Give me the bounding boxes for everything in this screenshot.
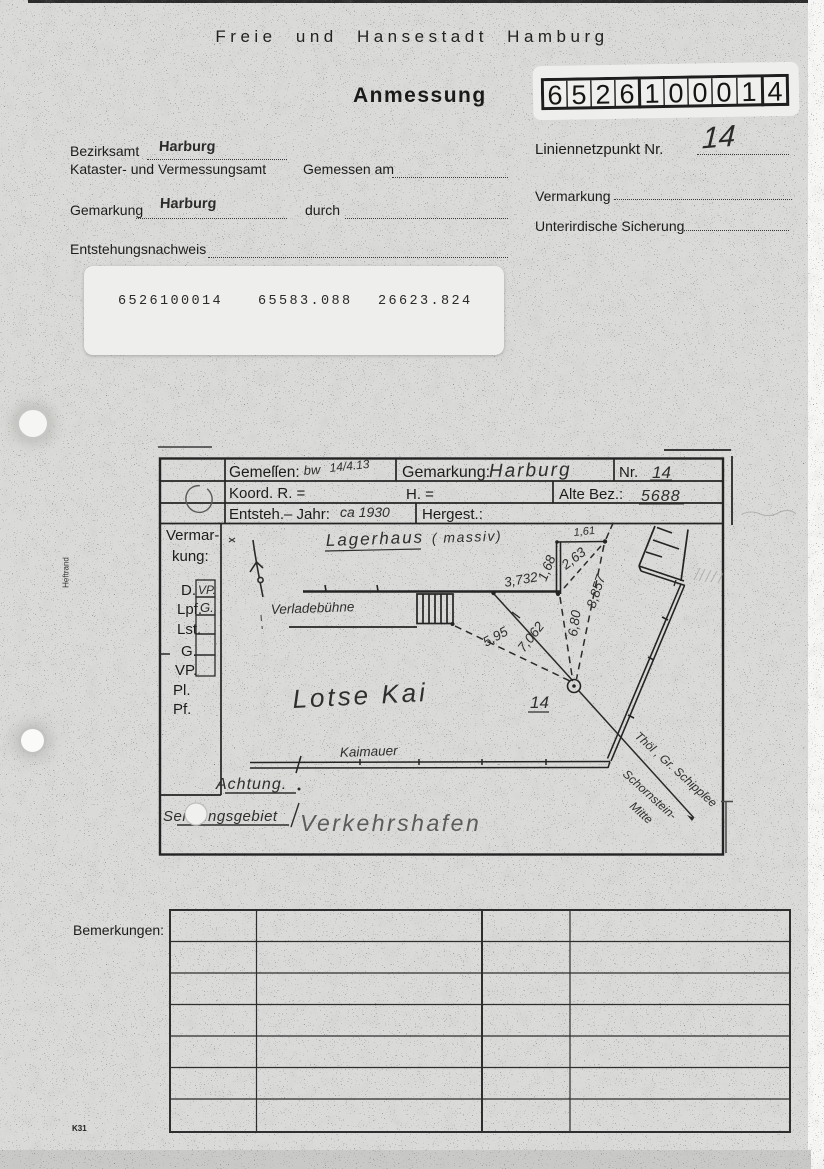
svg-text:G.: G. bbox=[181, 643, 197, 660]
svg-text:1,68: 1,68 bbox=[535, 553, 559, 583]
svg-text:Nr.: Nr. bbox=[619, 464, 638, 481]
svg-text:2,63: 2,63 bbox=[558, 544, 589, 573]
svg-text:14/4.13: 14/4.13 bbox=[329, 457, 371, 475]
svg-text:Lst.: Lst. bbox=[177, 621, 201, 638]
svg-text:G.: G. bbox=[200, 600, 214, 615]
svg-text:Kaimauer: Kaimauer bbox=[340, 743, 399, 760]
svg-text:( massiv): ( massiv) bbox=[432, 528, 503, 546]
svg-text:Gemarkung:: Gemarkung: bbox=[402, 464, 490, 481]
svg-text:kung:: kung: bbox=[172, 548, 209, 565]
svg-text:Senkungsgebiet: Senkungsgebiet bbox=[163, 808, 278, 825]
svg-text:14: 14 bbox=[530, 693, 549, 712]
svg-text:ca 1930: ca 1930 bbox=[340, 504, 390, 520]
svg-text:5,95: 5,95 bbox=[480, 624, 511, 650]
svg-text:7,062: 7,062 bbox=[515, 619, 548, 655]
svg-text:14: 14 bbox=[652, 463, 671, 482]
svg-text:Lotse Kai: Lotse Kai bbox=[292, 677, 429, 714]
svg-text:Koord. R. =: Koord. R. = bbox=[229, 485, 306, 502]
svg-text:Vermar-: Vermar- bbox=[166, 527, 219, 544]
svg-text:Pf.: Pf. bbox=[173, 701, 191, 718]
svg-text:3,732: 3,732 bbox=[503, 569, 539, 590]
svg-text:1,61: 1,61 bbox=[573, 525, 596, 539]
svg-text:Achtung.: Achtung. bbox=[215, 776, 287, 793]
svg-text:Pl.: Pl. bbox=[173, 682, 191, 699]
svg-text:bw: bw bbox=[303, 462, 322, 478]
svg-text:VP.: VP. bbox=[198, 583, 216, 597]
svg-text:H. =: H. = bbox=[406, 486, 434, 503]
svg-text:VP.: VP. bbox=[175, 662, 197, 679]
svg-text:Entsteh.– Jahr:: Entsteh.– Jahr: bbox=[229, 506, 330, 523]
svg-text:D.: D. bbox=[181, 582, 196, 599]
svg-text:8,857: 8,857 bbox=[584, 573, 609, 610]
svg-text:Alte Bez.:: Alte Bez.: bbox=[559, 486, 623, 503]
svg-text:5688: 5688 bbox=[641, 488, 681, 505]
svg-text:Gemeſſen:: Gemeſſen: bbox=[229, 464, 300, 481]
svg-text:Verladebühne: Verladebühne bbox=[271, 599, 355, 617]
svg-text:6,80: 6,80 bbox=[565, 609, 584, 638]
svg-text:Harburg: Harburg bbox=[489, 460, 572, 482]
svg-text:Verkehrshafen: Verkehrshafen bbox=[300, 810, 481, 836]
svg-text:Hergest.:: Hergest.: bbox=[422, 506, 483, 523]
svg-text:Lagerhaus: Lagerhaus bbox=[325, 528, 424, 550]
